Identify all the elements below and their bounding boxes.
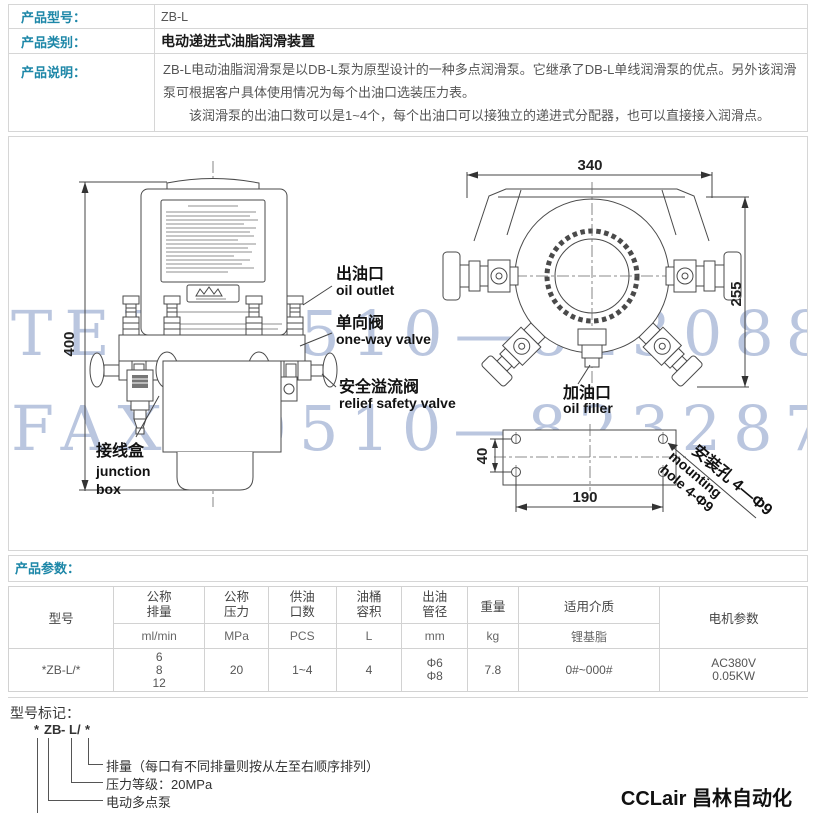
code-dash: -: [61, 722, 65, 737]
cell-weight: 7.8: [468, 649, 519, 692]
row-product-category: 产品类别： 电动递进式油脂润滑装置: [9, 29, 808, 54]
oil-outlet-label-cn: 出油口: [336, 264, 384, 283]
marking-title: 型号标记：: [10, 703, 80, 723]
oil-filler-label-en: oil filler: [563, 400, 613, 416]
cell-displacement: 6 8 12: [114, 649, 205, 692]
marking-item-displacement: 排量（每口有不同排量则按从左至右顺序排列）: [106, 756, 379, 775]
relief-valve-label-cn: 安全溢流阀: [339, 377, 419, 396]
marking-item-pressure: 压力等级：20MPa: [106, 774, 212, 793]
params-table: 型号 公称排量 公称压力 供油口数 油桶容积 出油管径 重量 适用介质 电机参数…: [8, 586, 808, 692]
description-paragraph-1: ZB-L电动油脂润滑泵是以DB-L泵为原型设计的一种多点润滑泵。它继承了DB-L…: [163, 58, 799, 104]
unit-medium: 锂基脂: [518, 624, 660, 649]
code-slash: /: [77, 722, 81, 737]
relief-valve-label-en: relief safety valve: [339, 395, 456, 411]
side-valve-left: [443, 252, 518, 300]
junction-box-part: [127, 370, 153, 434]
dim-255: 255: [728, 281, 745, 306]
code-star1: *: [34, 722, 39, 737]
pump-front-view: 400: [61, 161, 456, 507]
cell-pipe: Φ6 Φ8: [402, 649, 468, 692]
dim-340: 340: [577, 157, 602, 174]
unit-pressure: MPa: [205, 624, 269, 649]
technical-drawing-panel: TEL：0510—82308871 FAX：0510—82328771 400: [8, 136, 808, 551]
unit-outlets: PCS: [268, 624, 336, 649]
product-info-table: 产品型号： ZB-L 产品类别： 电动递进式油脂润滑装置 产品说明： ZB-L电…: [8, 4, 808, 132]
code-star2: *: [85, 722, 90, 737]
col-volume: 油桶容积: [336, 587, 402, 624]
product-model-value: ZB-L: [155, 5, 808, 29]
row-product-description: 产品说明： ZB-L电动油脂润滑泵是以DB-L泵为原型设计的一种多点润滑泵。它继…: [9, 54, 808, 132]
description-paragraph-2: 该润滑泵的出油口数可以是1~4个，每个出油口可以接独立的递进式分配器，也可以直接…: [163, 104, 799, 127]
junction-box-label-en2: box: [96, 481, 121, 497]
col-displacement: 公称排量: [114, 587, 205, 624]
col-outlets: 供油口数: [268, 587, 336, 624]
dim-40: 40: [474, 448, 491, 465]
row-product-model: 产品型号： ZB-L: [9, 5, 808, 29]
cell-volume: 4: [336, 649, 402, 692]
oil-outlet-label-en: oil outlet: [336, 282, 395, 298]
cell-medium: 0#~000#: [518, 649, 660, 692]
junction-box-label-en1: junction: [95, 463, 150, 479]
one-way-valve-label-en: one-way valve: [336, 331, 431, 347]
params-data-row: *ZB-L/* 6 8 12 20 1~4 4 Φ6 Φ8 7.8 0#~000…: [9, 649, 808, 692]
params-section-title: 产品参数：: [8, 555, 808, 582]
product-description-label: 产品说明：: [9, 54, 155, 132]
one-way-valve-label-cn: 单向阀: [336, 313, 384, 332]
col-motor: 电机参数: [660, 587, 808, 649]
col-weight: 重量: [468, 587, 519, 624]
col-pressure: 公称压力: [205, 587, 269, 624]
unit-volume: L: [336, 624, 402, 649]
brand-logo-text: CCLair 昌林自动化: [621, 782, 792, 811]
cell-outlets: 1~4: [268, 649, 336, 692]
col-model: 型号: [9, 587, 114, 649]
unit-pipe: mm: [402, 624, 468, 649]
connector-outlet-count: [37, 738, 103, 813]
brand-crown-logo: [187, 285, 239, 302]
dim-190: 190: [572, 489, 597, 506]
cell-pressure: 20: [205, 649, 269, 692]
unit-weight: kg: [468, 624, 519, 649]
product-category-value: 电动递进式油脂润滑装置: [155, 29, 808, 54]
product-category-label: 产品类别：: [9, 29, 155, 54]
unit-displacement: ml/min: [114, 624, 205, 649]
params-header-row: 型号 公称排量 公称压力 供油口数 油桶容积 出油管径 重量 适用介质 电机参数: [9, 587, 808, 624]
code-zb: ZB: [44, 722, 61, 737]
model-marking-section: 型号标记： * ZB - L / * 排量（每口有不同排量则按从左至右顺序排列）…: [8, 697, 808, 813]
cell-model: *ZB-L/*: [9, 649, 114, 692]
col-pipe: 出油管径: [402, 587, 468, 624]
product-description-value: ZB-L电动油脂润滑泵是以DB-L泵为原型设计的一种多点润滑泵。它继承了DB-L…: [155, 54, 808, 132]
page: 产品型号： ZB-L 产品类别： 电动递进式油脂润滑装置 产品说明： ZB-L电…: [8, 4, 808, 813]
junction-box-label-cn: 接线盒: [96, 441, 145, 460]
col-medium: 适用介质: [518, 587, 660, 624]
product-model-label: 产品型号：: [9, 5, 155, 29]
mounting-plate-view: 40 190 安装孔 4—Φ9 mounting hole 4-Φ9: [474, 424, 777, 545]
cell-motor: AC380V 0.05KW: [660, 649, 808, 692]
dim-400: 400: [61, 331, 78, 356]
pump-technical-drawing: 400: [9, 137, 807, 550]
oil-filler-part: [578, 329, 606, 367]
code-l: L: [69, 722, 77, 737]
pump-top-view: 340: [443, 157, 749, 416]
marking-item-pump-type: 电动多点泵: [106, 792, 171, 811]
